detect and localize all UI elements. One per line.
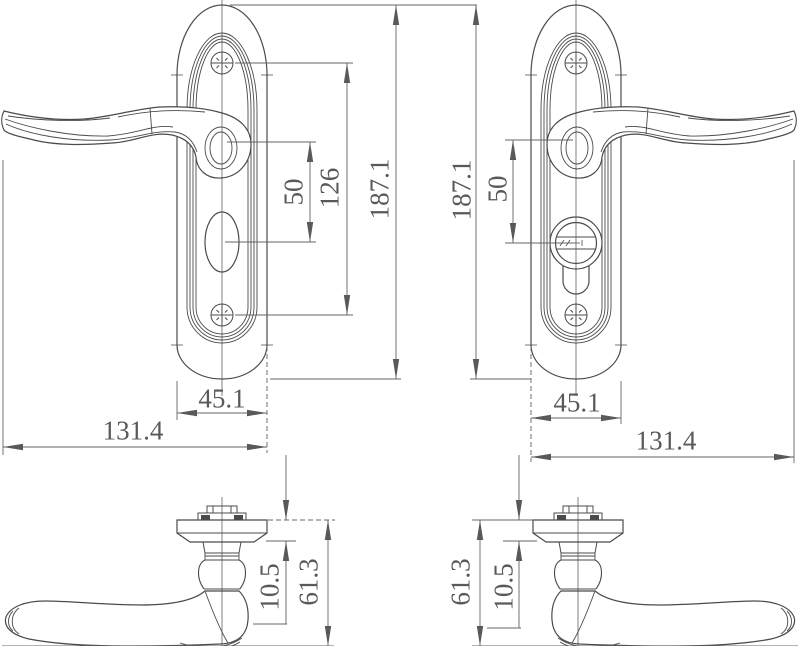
dimension-arrowheads [3,5,794,646]
dimension-lines [2,5,798,646]
dim-label-handle-to-turn: 50 [281,179,308,206]
side-view-right [533,497,795,646]
dim-label-plate-height-left: 187.1 [367,159,394,220]
side-view-left [5,497,267,646]
dim-label-projection-left: 61.3 [296,558,323,605]
front-view-right [525,0,796,396]
drawing-linework [0,0,800,646]
dim-label-overall-length-left: 131.4 [103,418,164,445]
dim-label-plate-height-right: 187.1 [449,160,476,221]
dim-label-plate-thickness-right: 10.5 [491,563,518,610]
dim-label-plate-thickness-left: 10.5 [257,563,284,610]
dim-label-overall-length-right: 131.4 [636,428,697,455]
dim-label-projection-right: 61.3 [448,558,475,605]
dim-label-screw-spacing: 126 [317,168,344,209]
technical-drawing-canvas: 50 126 187.1 45.1 131.4 187.1 50 45.1 13… [0,0,800,646]
dim-label-plate-width-right: 45.1 [553,390,600,417]
dim-label-handle-to-cylinder: 50 [485,176,512,203]
front-view-left [2,0,273,396]
dim-label-plate-width-left: 45.1 [198,386,245,413]
